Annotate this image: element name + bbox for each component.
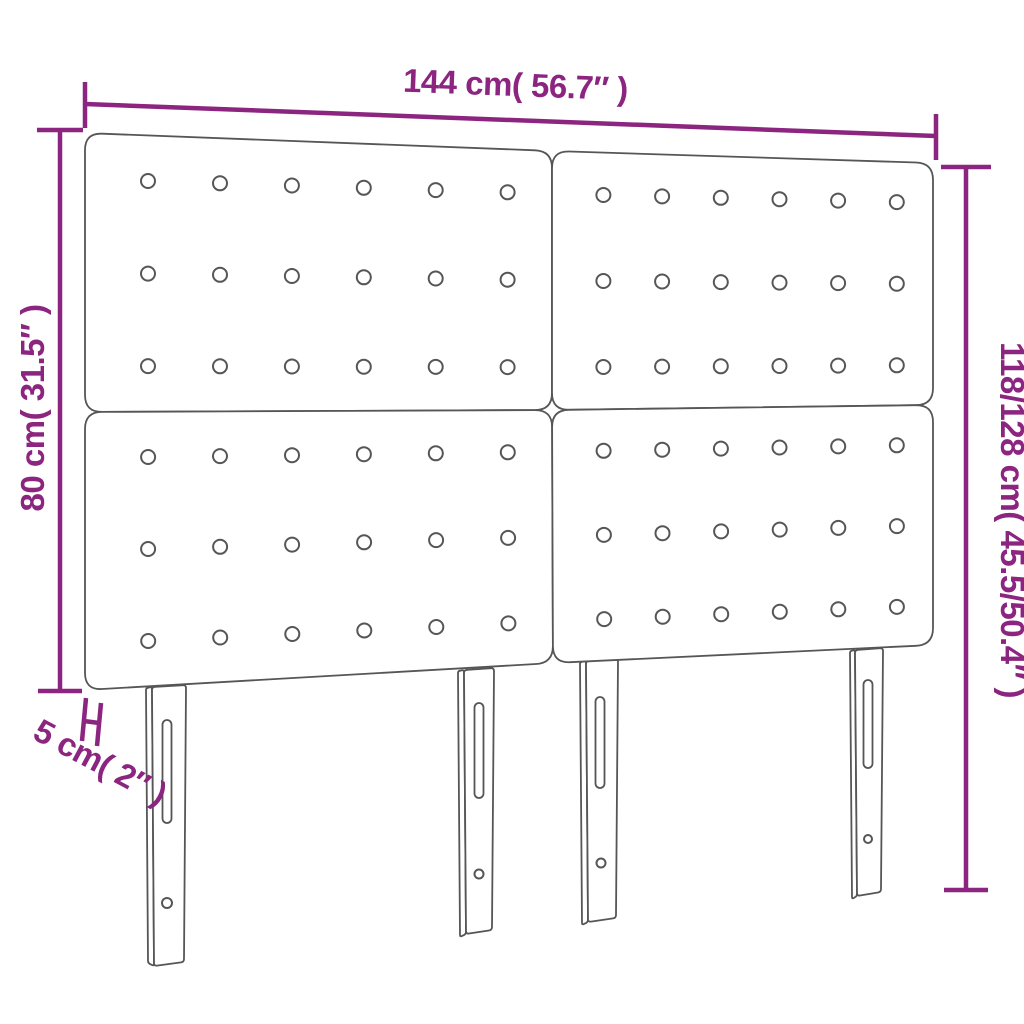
tufting-button	[141, 267, 155, 281]
tufting-button	[655, 443, 669, 457]
tufting-button	[655, 275, 669, 289]
tufting-button	[831, 602, 845, 616]
tufting-button	[357, 360, 371, 374]
tufting-button	[285, 179, 299, 193]
tufting-button	[501, 273, 515, 287]
tufting-button	[213, 449, 227, 463]
tufting-button	[714, 275, 728, 289]
tufting-button	[501, 185, 515, 199]
tufting-button	[773, 276, 787, 290]
tufting-button	[501, 531, 515, 545]
tufting-button	[656, 526, 670, 540]
diagram-stage: 144 cm( 56.7″ ) 80 cm( 31.5″ ) 118/128 c…	[0, 0, 1024, 1024]
tufting-button	[285, 627, 299, 641]
tufting-button	[714, 607, 728, 621]
tufting-button	[773, 359, 787, 373]
tufting-button	[714, 524, 728, 538]
tufting-button	[429, 620, 443, 634]
headboard-legs	[146, 648, 883, 965]
tufting-button	[213, 631, 227, 645]
tufting-button	[714, 191, 728, 205]
tufting-button	[141, 450, 155, 464]
leg-slot	[864, 680, 873, 768]
headboard-panels	[85, 134, 933, 689]
tufting-button	[429, 183, 443, 197]
tufting-button	[357, 624, 371, 638]
tufting-button	[831, 194, 845, 208]
tufting-button	[285, 538, 299, 552]
tufting-button	[357, 447, 371, 461]
leg-screw-hole	[475, 870, 484, 879]
tufting-button	[597, 528, 611, 542]
tufting-button	[773, 192, 787, 206]
tufting-button	[831, 521, 845, 535]
tufting-button	[141, 359, 155, 373]
right-height-dimension-label: 118/128 cm( 45.5/50.4″ )	[994, 342, 1024, 698]
tufting-button	[213, 268, 227, 282]
tufting-button	[773, 605, 787, 619]
leg-slot	[596, 697, 605, 788]
leg-screw-hole	[597, 859, 606, 868]
tufting-button	[357, 181, 371, 195]
headboard-dimension-diagram: 144 cm( 56.7″ ) 80 cm( 31.5″ ) 118/128 c…	[0, 0, 1024, 1024]
tufting-button	[656, 610, 670, 624]
tufting-button	[597, 612, 611, 626]
tufting-button	[429, 272, 443, 286]
tufting-button	[773, 441, 787, 455]
leg-slot	[475, 703, 484, 798]
tufting-button	[429, 360, 443, 374]
tufting-button	[890, 358, 904, 372]
tufting-button	[890, 600, 904, 614]
tufting-button	[285, 360, 299, 374]
right-height-dimension-line	[941, 167, 991, 890]
width-dimension-label: 144 cm( 56.7″ )	[402, 62, 628, 108]
tufting-button	[596, 188, 610, 202]
tufting-button	[357, 270, 371, 284]
tufting-button	[596, 360, 610, 374]
tufting-button	[213, 176, 227, 190]
tufting-button	[831, 359, 845, 373]
tufting-button	[890, 277, 904, 291]
tufting-button	[285, 448, 299, 462]
tufting-button	[714, 442, 728, 456]
tufting-button	[141, 542, 155, 556]
leg-screw-hole	[162, 898, 172, 908]
tufting-button	[429, 533, 443, 547]
tufting-button	[714, 359, 728, 373]
tufting-button	[890, 438, 904, 452]
tufting-button	[429, 446, 443, 460]
tufting-button	[596, 274, 610, 288]
tufting-button	[501, 445, 515, 459]
tufting-button	[213, 359, 227, 373]
tufting-button	[890, 519, 904, 533]
tufting-button	[213, 540, 227, 554]
tufting-button	[890, 195, 904, 209]
leg-slot	[163, 720, 172, 823]
left-height-dimension-label: 80 cm( 31.5″ )	[14, 305, 51, 512]
tufting-button	[655, 189, 669, 203]
tufting-button	[831, 276, 845, 290]
tufting-button	[655, 360, 669, 374]
tufting-button	[285, 269, 299, 283]
tufting-button	[597, 444, 611, 458]
tufting-button	[831, 439, 845, 453]
tufting-button	[773, 523, 787, 537]
leg-screw-hole	[864, 835, 872, 843]
tufting-button	[501, 360, 515, 374]
tufting-button	[141, 174, 155, 188]
tufting-button	[357, 535, 371, 549]
tufting-button	[141, 634, 155, 648]
tufting-button	[501, 616, 515, 630]
